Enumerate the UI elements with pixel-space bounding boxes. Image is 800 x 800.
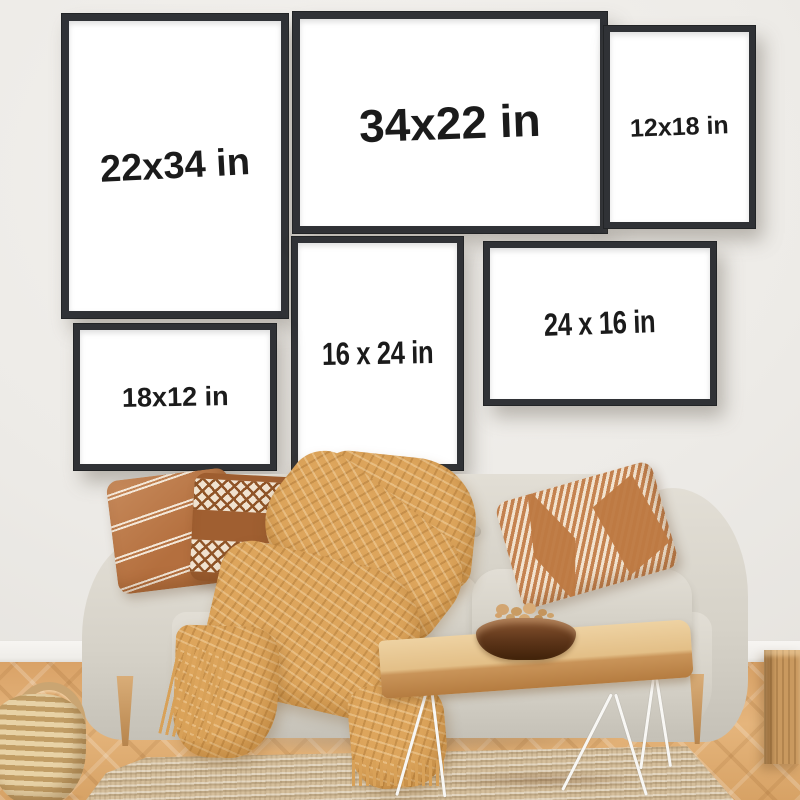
nut-bowl-group — [476, 602, 576, 662]
frame-size-label: 22x34 in — [99, 141, 251, 192]
poster-frame-12x18: 12x18 in — [604, 26, 755, 228]
wood-block — [764, 650, 800, 764]
frame-size-label: 34x22 in — [358, 92, 541, 152]
poster-frame-22x34: 22x34 in — [62, 14, 288, 318]
table-floor-shadow — [392, 766, 692, 794]
living-room-scene: 22x34 in 34x22 in 12x18 in 16 x 24 in 24… — [0, 0, 800, 800]
poster-frame-18x12: 18x12 in — [74, 324, 276, 470]
poster-frame-16x24: 16 x 24 in — [292, 237, 463, 470]
frame-size-label: 24 x 16 in — [544, 303, 656, 344]
frame-size-label: 18x12 in — [121, 381, 228, 414]
woven-basket — [0, 694, 86, 800]
walnuts — [496, 604, 509, 615]
poster-frame-34x22: 34x22 in — [293, 12, 607, 233]
wooden-bowl — [476, 618, 576, 660]
frame-size-label: 16 x 24 in — [322, 334, 434, 373]
frame-size-label: 12x18 in — [630, 111, 730, 143]
poster-frame-24x16: 24 x 16 in — [484, 242, 716, 405]
